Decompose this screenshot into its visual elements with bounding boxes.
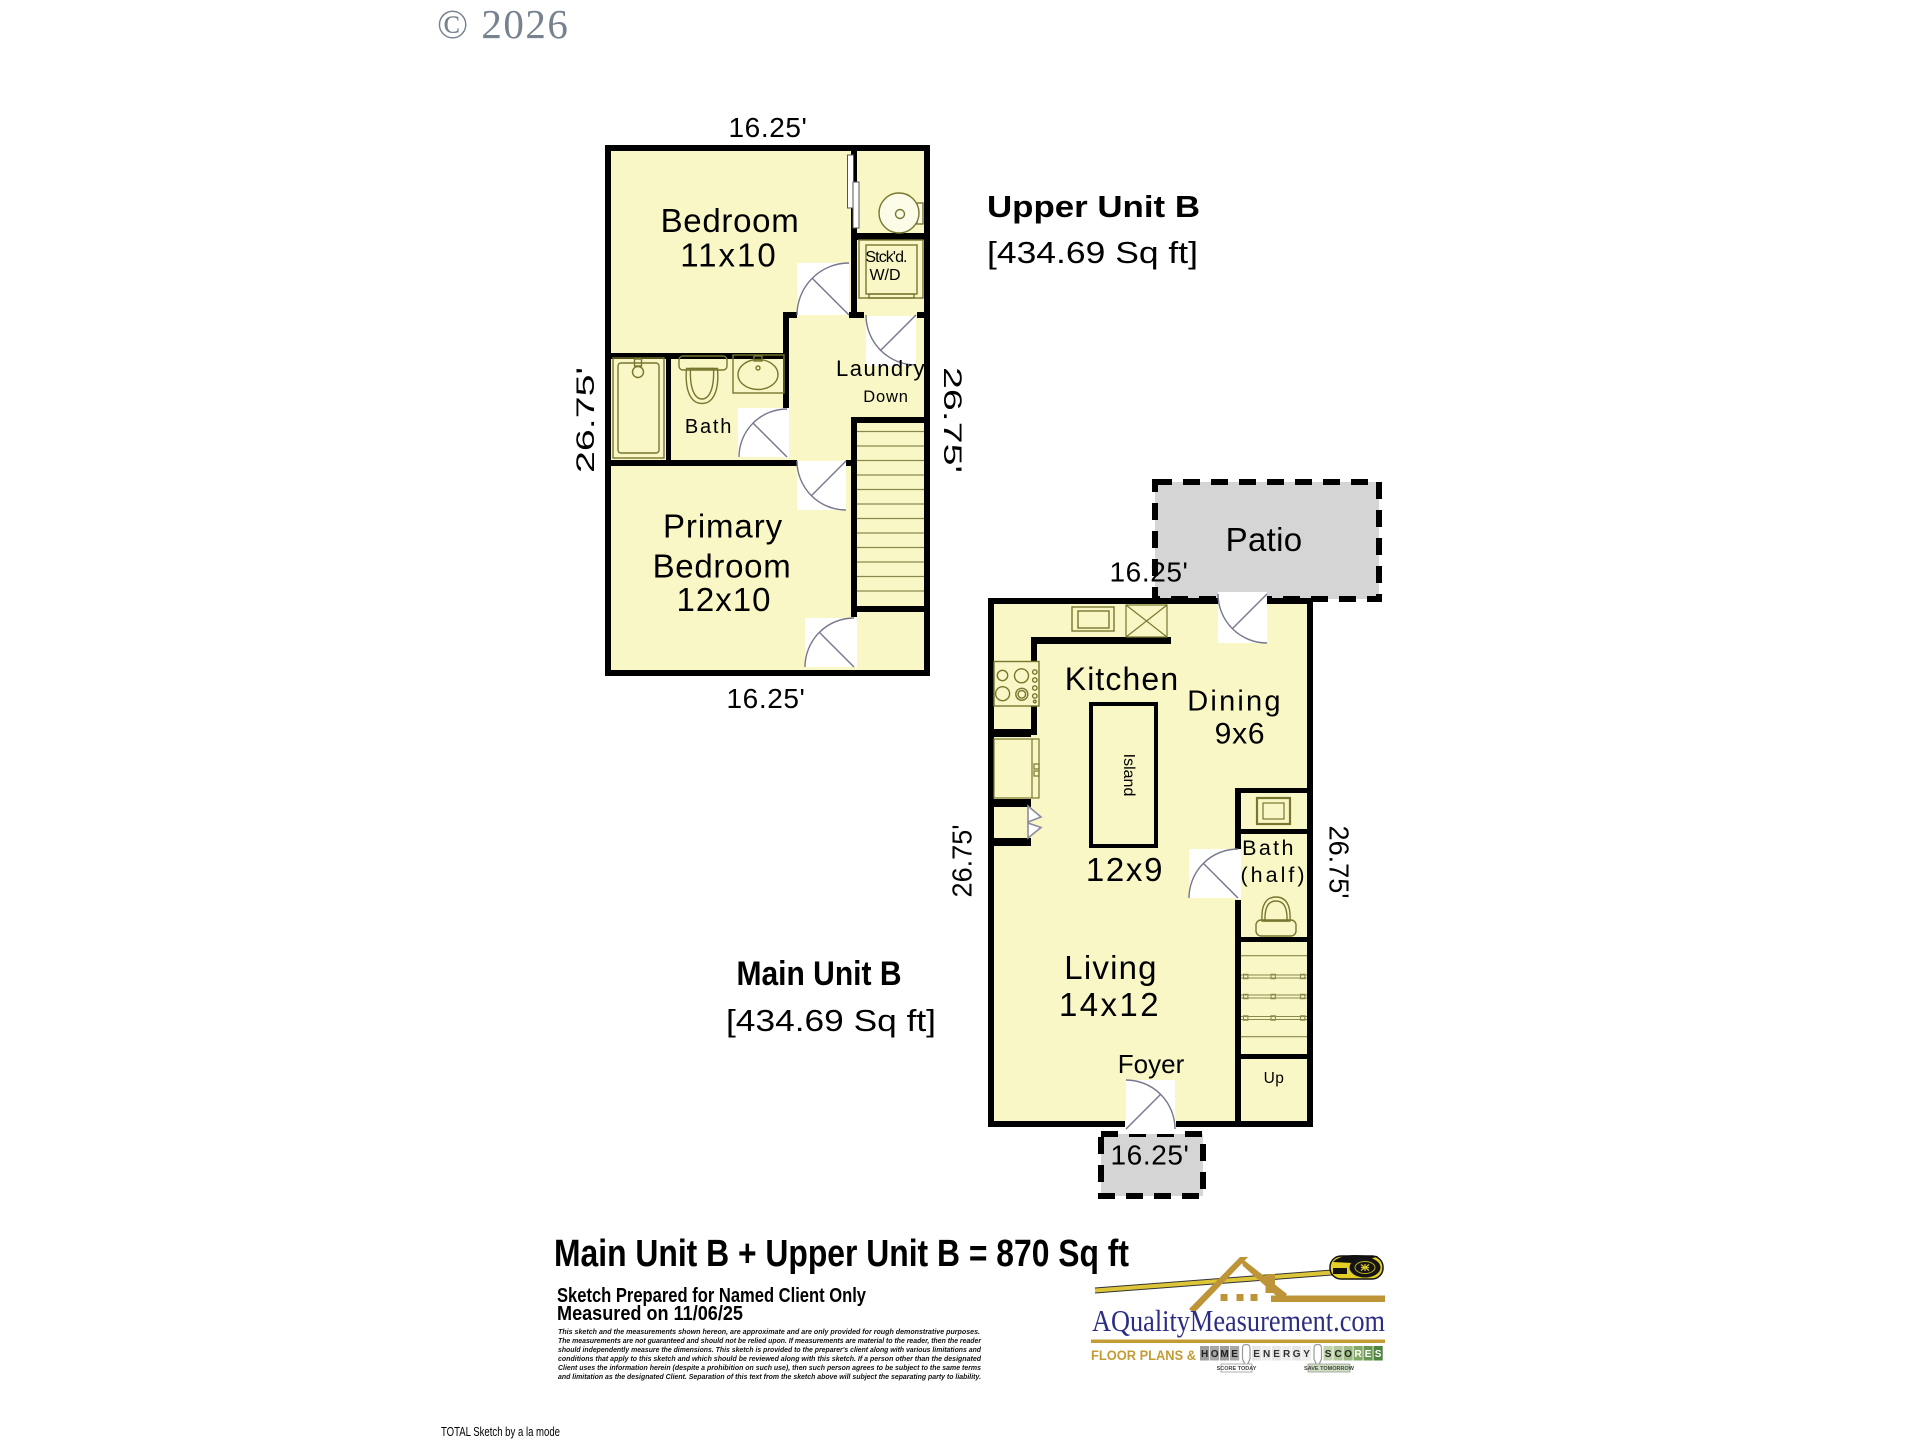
svg-text:R: R <box>1354 1349 1362 1360</box>
svg-text:E: E <box>1253 1349 1260 1360</box>
svg-text:G: G <box>1293 1349 1301 1360</box>
svg-text:M: M <box>1220 1349 1228 1360</box>
svg-text:E: E <box>1231 1349 1238 1360</box>
svg-text:S: S <box>1375 1349 1382 1360</box>
svg-text:SAVE TOMORROW: SAVE TOMORROW <box>1304 1366 1355 1372</box>
svg-text:N: N <box>1263 1349 1270 1360</box>
svg-text:Y: Y <box>1303 1349 1310 1360</box>
svg-text:E: E <box>1273 1349 1280 1360</box>
svg-text:H: H <box>1201 1349 1208 1360</box>
svg-text:O: O <box>1211 1349 1219 1360</box>
svg-text:S: S <box>1325 1349 1332 1360</box>
svg-text:SCORE TODAY: SCORE TODAY <box>1217 1366 1257 1372</box>
svg-text:E: E <box>1365 1349 1372 1360</box>
svg-text:C: C <box>1334 1349 1341 1360</box>
svg-text:FLOOR PLANS &: FLOOR PLANS & <box>1091 1348 1196 1363</box>
svg-text:R: R <box>1283 1349 1291 1360</box>
svg-text:O: O <box>1344 1349 1352 1360</box>
svg-text:AQualityMeasurement.com: AQualityMeasurement.com <box>1092 1303 1385 1338</box>
